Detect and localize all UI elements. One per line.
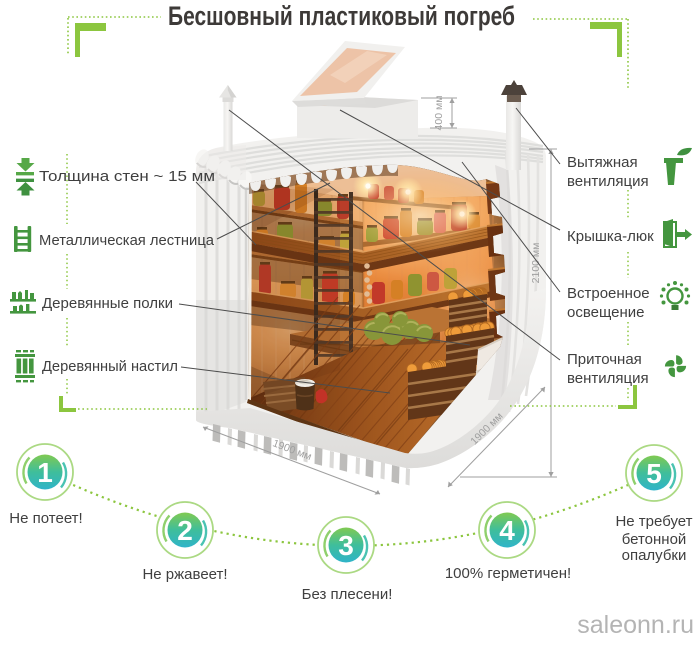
svg-text:Не требует: Не требует — [615, 513, 692, 530]
svg-text:Деревянный настил: Деревянный настил — [42, 358, 178, 375]
svg-text:вентиляция: вентиляция — [567, 173, 649, 190]
svg-text:Толщина стен ~ 15 мм: Толщина стен ~ 15 мм — [39, 168, 215, 185]
svg-text:вентиляция: вентиляция — [567, 370, 649, 387]
svg-text:2: 2 — [177, 515, 193, 546]
svg-text:Металлическая лестница: Металлическая лестница — [39, 232, 215, 249]
svg-text:Без плесени!: Без плесени! — [302, 586, 393, 603]
svg-text:Крышка-люк: Крышка-люк — [567, 228, 654, 245]
svg-text:saleonn.ru: saleonn.ru — [577, 611, 694, 639]
svg-text:400 мм: 400 мм — [433, 96, 445, 131]
svg-text:Приточная: Приточная — [567, 351, 642, 368]
svg-text:Деревянные полки: Деревянные полки — [42, 295, 173, 312]
svg-text:3: 3 — [338, 530, 354, 561]
svg-text:опалубки: опалубки — [622, 547, 687, 564]
svg-text:5: 5 — [646, 458, 662, 489]
svg-text:освещение: освещение — [567, 304, 645, 321]
svg-text:Бесшовный пластиковый погреб: Бесшовный пластиковый погреб — [168, 1, 515, 31]
svg-text:4: 4 — [499, 515, 515, 546]
svg-text:Не ржавеет!: Не ржавеет! — [142, 566, 227, 583]
svg-text:Вытяжная: Вытяжная — [567, 154, 638, 171]
svg-text:Не потеет!: Не потеет! — [9, 510, 82, 527]
svg-text:100% герметичен!: 100% герметичен! — [445, 565, 571, 582]
svg-text:бетонной: бетонной — [622, 531, 687, 548]
svg-text:2100 мм: 2100 мм — [530, 243, 542, 284]
svg-text:Встроенное: Встроенное — [567, 285, 650, 302]
svg-text:1: 1 — [37, 457, 53, 488]
